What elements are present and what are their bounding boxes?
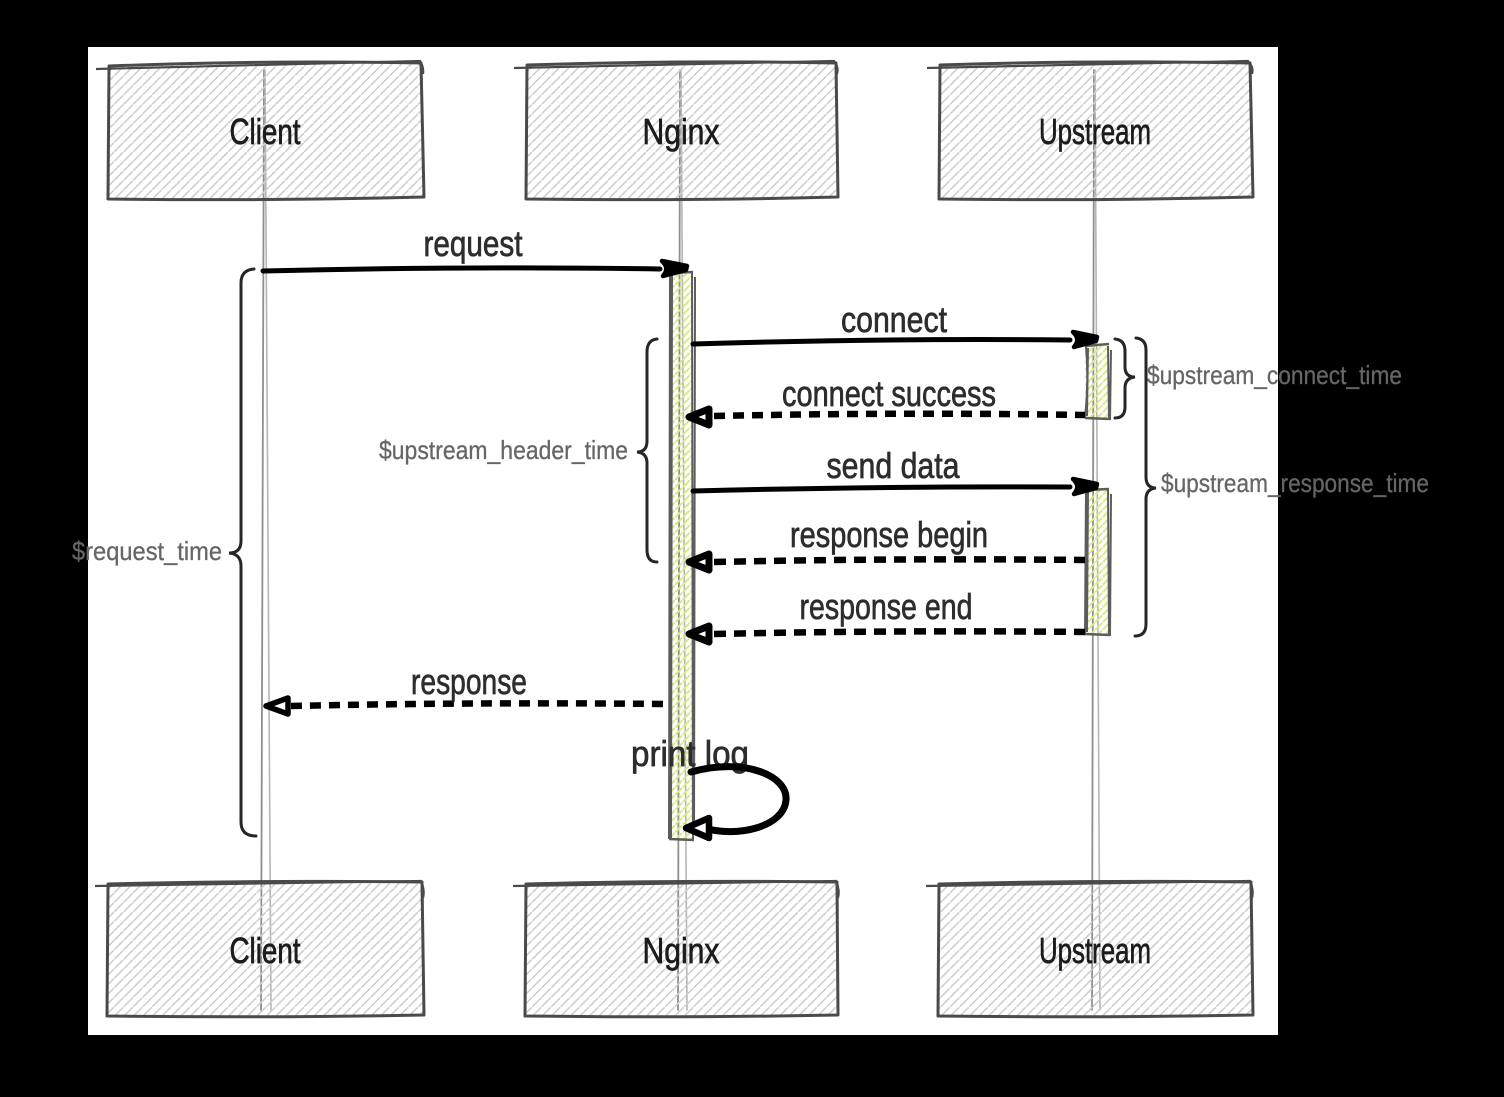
svg-text:Client: Client: [230, 930, 301, 971]
svg-text:send data: send data: [827, 445, 961, 486]
svg-text:Upstream: Upstream: [1039, 930, 1151, 971]
svg-text:response end: response end: [800, 586, 973, 627]
svg-text:connect: connect: [841, 299, 947, 340]
svg-text:response begin: response begin: [790, 514, 988, 555]
svg-text:Nginx: Nginx: [643, 111, 720, 152]
svg-text:$upstream_header_time: $upstream_header_time: [379, 435, 628, 465]
svg-text:Nginx: Nginx: [643, 930, 720, 971]
svg-text:response: response: [411, 661, 527, 702]
svg-text:$upstream_connect_time: $upstream_connect_time: [1147, 360, 1402, 390]
svg-text:request: request: [424, 223, 523, 264]
svg-text:Upstream: Upstream: [1039, 111, 1151, 152]
svg-text:connect success: connect success: [782, 373, 996, 414]
svg-text:Client: Client: [230, 111, 301, 152]
svg-text:$request_time: $request_time: [72, 536, 222, 566]
svg-text:$upstream_response_time: $upstream_response_time: [1161, 468, 1429, 498]
